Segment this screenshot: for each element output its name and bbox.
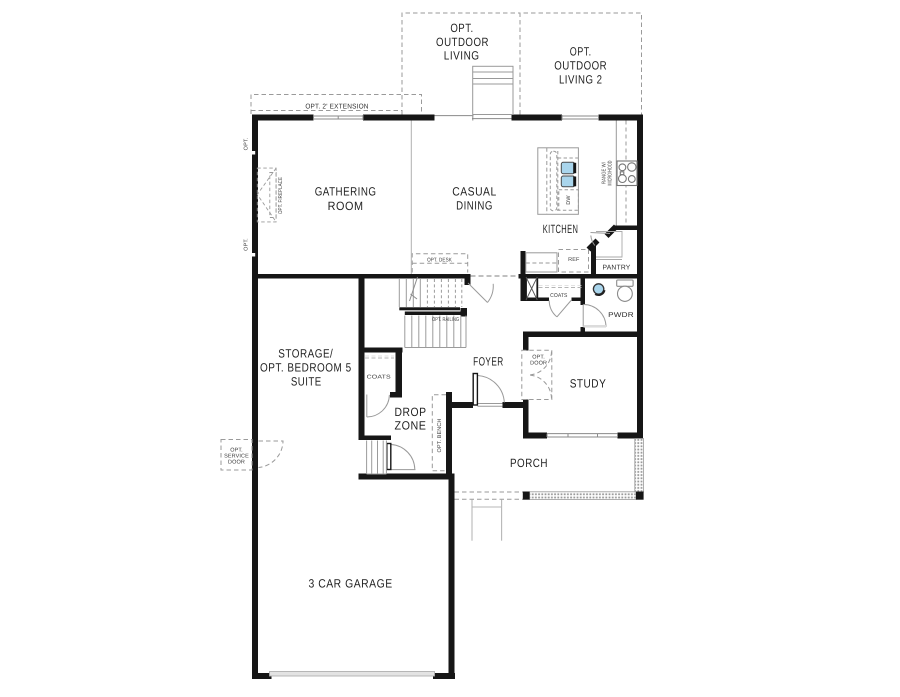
svg-text:PORCH: PORCH	[510, 456, 548, 470]
svg-text:OUTDOOR: OUTDOOR	[436, 35, 489, 49]
svg-text:DINING: DINING	[456, 199, 493, 213]
svg-text:GATHERING: GATHERING	[315, 185, 377, 199]
svg-text:DROP: DROP	[395, 405, 427, 419]
svg-text:OPT. BEDROOM 5: OPT. BEDROOM 5	[260, 360, 352, 374]
svg-text:STUDY: STUDY	[570, 376, 607, 390]
svg-text:PANTRY: PANTRY	[603, 264, 631, 271]
svg-text:COATS: COATS	[367, 374, 391, 380]
svg-text:DW: DW	[566, 195, 572, 205]
svg-text:OPT. RAILING: OPT. RAILING	[432, 317, 459, 323]
svg-text:FOYER: FOYER	[473, 355, 504, 369]
svg-text:MICRO/HOOD: MICRO/HOOD	[608, 161, 614, 186]
svg-text:OPT.: OPT.	[244, 238, 250, 251]
svg-text:CASUAL: CASUAL	[452, 185, 497, 199]
svg-text:OPT.: OPT.	[450, 21, 473, 35]
svg-text:OPT. BENCH: OPT. BENCH	[437, 418, 443, 452]
svg-text:3 CAR GARAGE: 3 CAR GARAGE	[309, 576, 393, 590]
svg-text:PWDR: PWDR	[608, 312, 634, 319]
svg-text:SUITE: SUITE	[291, 375, 322, 389]
svg-text:OUTDOOR: OUTDOOR	[554, 59, 607, 73]
svg-text:LIVING 2: LIVING 2	[559, 73, 603, 87]
svg-text:ZONE: ZONE	[395, 419, 427, 433]
svg-text:DOOR: DOOR	[530, 360, 547, 366]
svg-text:OPT. FIREPLACE: OPT. FIREPLACE	[278, 177, 284, 214]
svg-text:OPT.: OPT.	[244, 137, 250, 150]
svg-text:OPT. DESK: OPT. DESK	[427, 257, 452, 263]
svg-text:DOOR: DOOR	[228, 460, 245, 466]
svg-text:COATS: COATS	[550, 293, 568, 299]
svg-text:OPT. 2' EXTENSION: OPT. 2' EXTENSION	[305, 104, 368, 111]
svg-text:OPT.: OPT.	[570, 45, 592, 59]
svg-text:STORAGE/: STORAGE/	[278, 346, 333, 360]
svg-text:KITCHEN: KITCHEN	[543, 222, 579, 236]
svg-text:LIVING: LIVING	[444, 49, 480, 63]
svg-text:ROOM: ROOM	[328, 199, 364, 213]
svg-text:REF: REF	[568, 257, 580, 263]
